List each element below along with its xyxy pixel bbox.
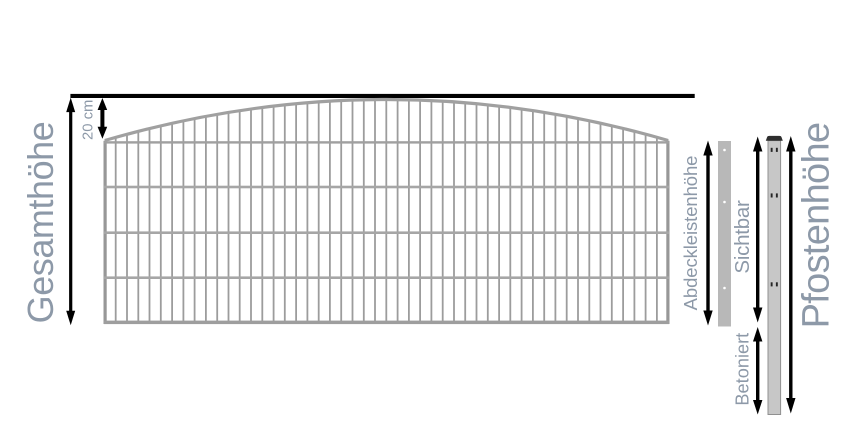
svg-text:Pfostenhöhe: Pfostenhöhe (796, 123, 838, 329)
svg-text:Abdeckleistenhöhe: Abdeckleistenhöhe (680, 156, 701, 311)
svg-text:20 cm: 20 cm (80, 100, 96, 140)
svg-text:Betoniert: Betoniert (733, 333, 753, 406)
svg-text:Sichtbar: Sichtbar (731, 200, 754, 274)
svg-text:Gesamthöhe: Gesamthöhe (20, 122, 61, 324)
